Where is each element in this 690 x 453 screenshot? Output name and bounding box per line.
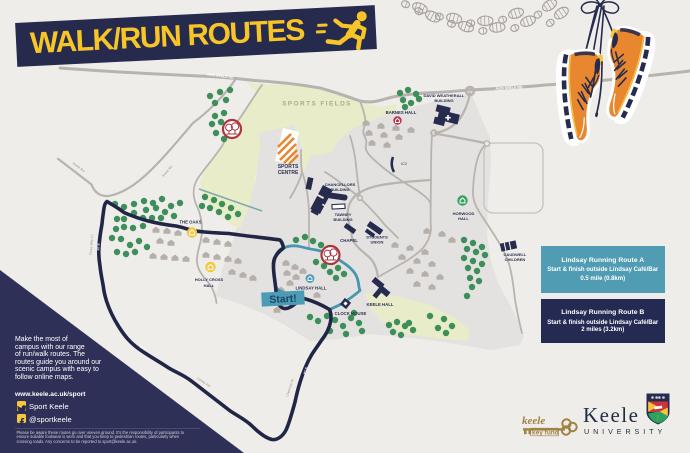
svg-text:BUILDING: BUILDING (330, 187, 349, 192)
svg-text:THE OAKS: THE OAKS (179, 220, 201, 225)
svg-text:CENTRE: CENTRE (278, 170, 299, 176)
svg-text:Three Mile Ln: Three Mile Ln (89, 234, 94, 255)
svg-text:Keele Rd: Keele Rd (161, 165, 173, 178)
svg-text:BUILDING: BUILDING (333, 217, 352, 222)
svg-text:RT B: RT B (96, 242, 101, 250)
svg-text:LINDSAY HALL: LINDSAY HALL (295, 286, 326, 291)
svg-text:?: ? (656, 415, 659, 423)
svg-text:BARNES HALL: BARNES HALL (386, 110, 417, 115)
svg-text:A525 KEELE RD: A525 KEELE RD (495, 85, 523, 90)
svg-text:CHAPEL: CHAPEL (340, 238, 358, 243)
svg-text:HALL: HALL (458, 216, 469, 221)
svg-text:keele: keele (522, 415, 545, 427)
svg-text:Start!: Start! (269, 293, 297, 306)
svg-text:key fund: key fund (532, 430, 559, 437)
svg-text:SPORTS FIELDS: SPORTS FIELDS (282, 101, 352, 108)
svg-text:CLOCK HOUSE: CLOCK HOUSE (335, 311, 367, 316)
svg-text:UNION: UNION (371, 240, 384, 245)
svg-text:IC2: IC2 (401, 162, 407, 166)
svg-text:HALL: HALL (204, 283, 215, 288)
svg-text:KEELE HALL: KEELE HALL (367, 302, 394, 307)
svg-text:HOLLY CROSS: HOLLY CROSS (195, 277, 224, 282)
svg-text:CHILDREN: CHILDREN (505, 257, 526, 262)
svg-text:Chemical Dr: Chemical Dr (285, 377, 295, 397)
svg-text:BUILDING: BUILDING (434, 98, 453, 103)
